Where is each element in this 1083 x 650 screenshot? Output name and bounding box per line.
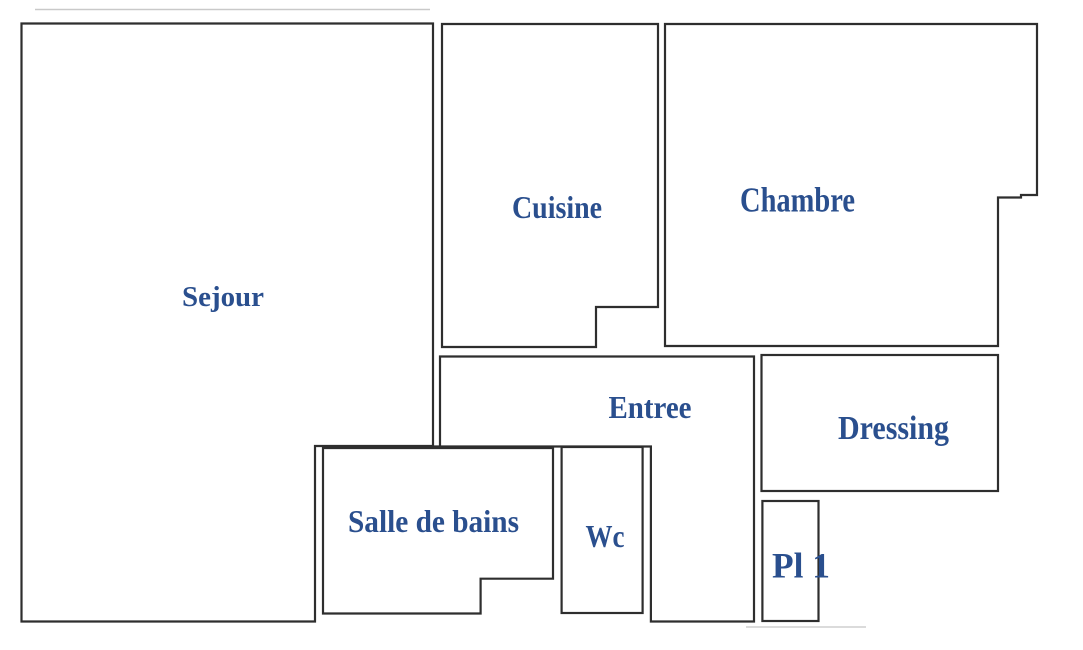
svg-text:Salle de bains: Salle de bains xyxy=(348,504,519,539)
svg-text:Pl 1: Pl 1 xyxy=(772,546,830,586)
svg-text:Cuisine: Cuisine xyxy=(512,190,602,225)
svg-text:Wc: Wc xyxy=(586,519,625,554)
svg-text:Entree: Entree xyxy=(609,390,692,425)
svg-text:Chambre: Chambre xyxy=(740,181,855,220)
svg-text:Sejour: Sejour xyxy=(182,281,264,313)
svg-text:Dressing: Dressing xyxy=(838,410,949,447)
